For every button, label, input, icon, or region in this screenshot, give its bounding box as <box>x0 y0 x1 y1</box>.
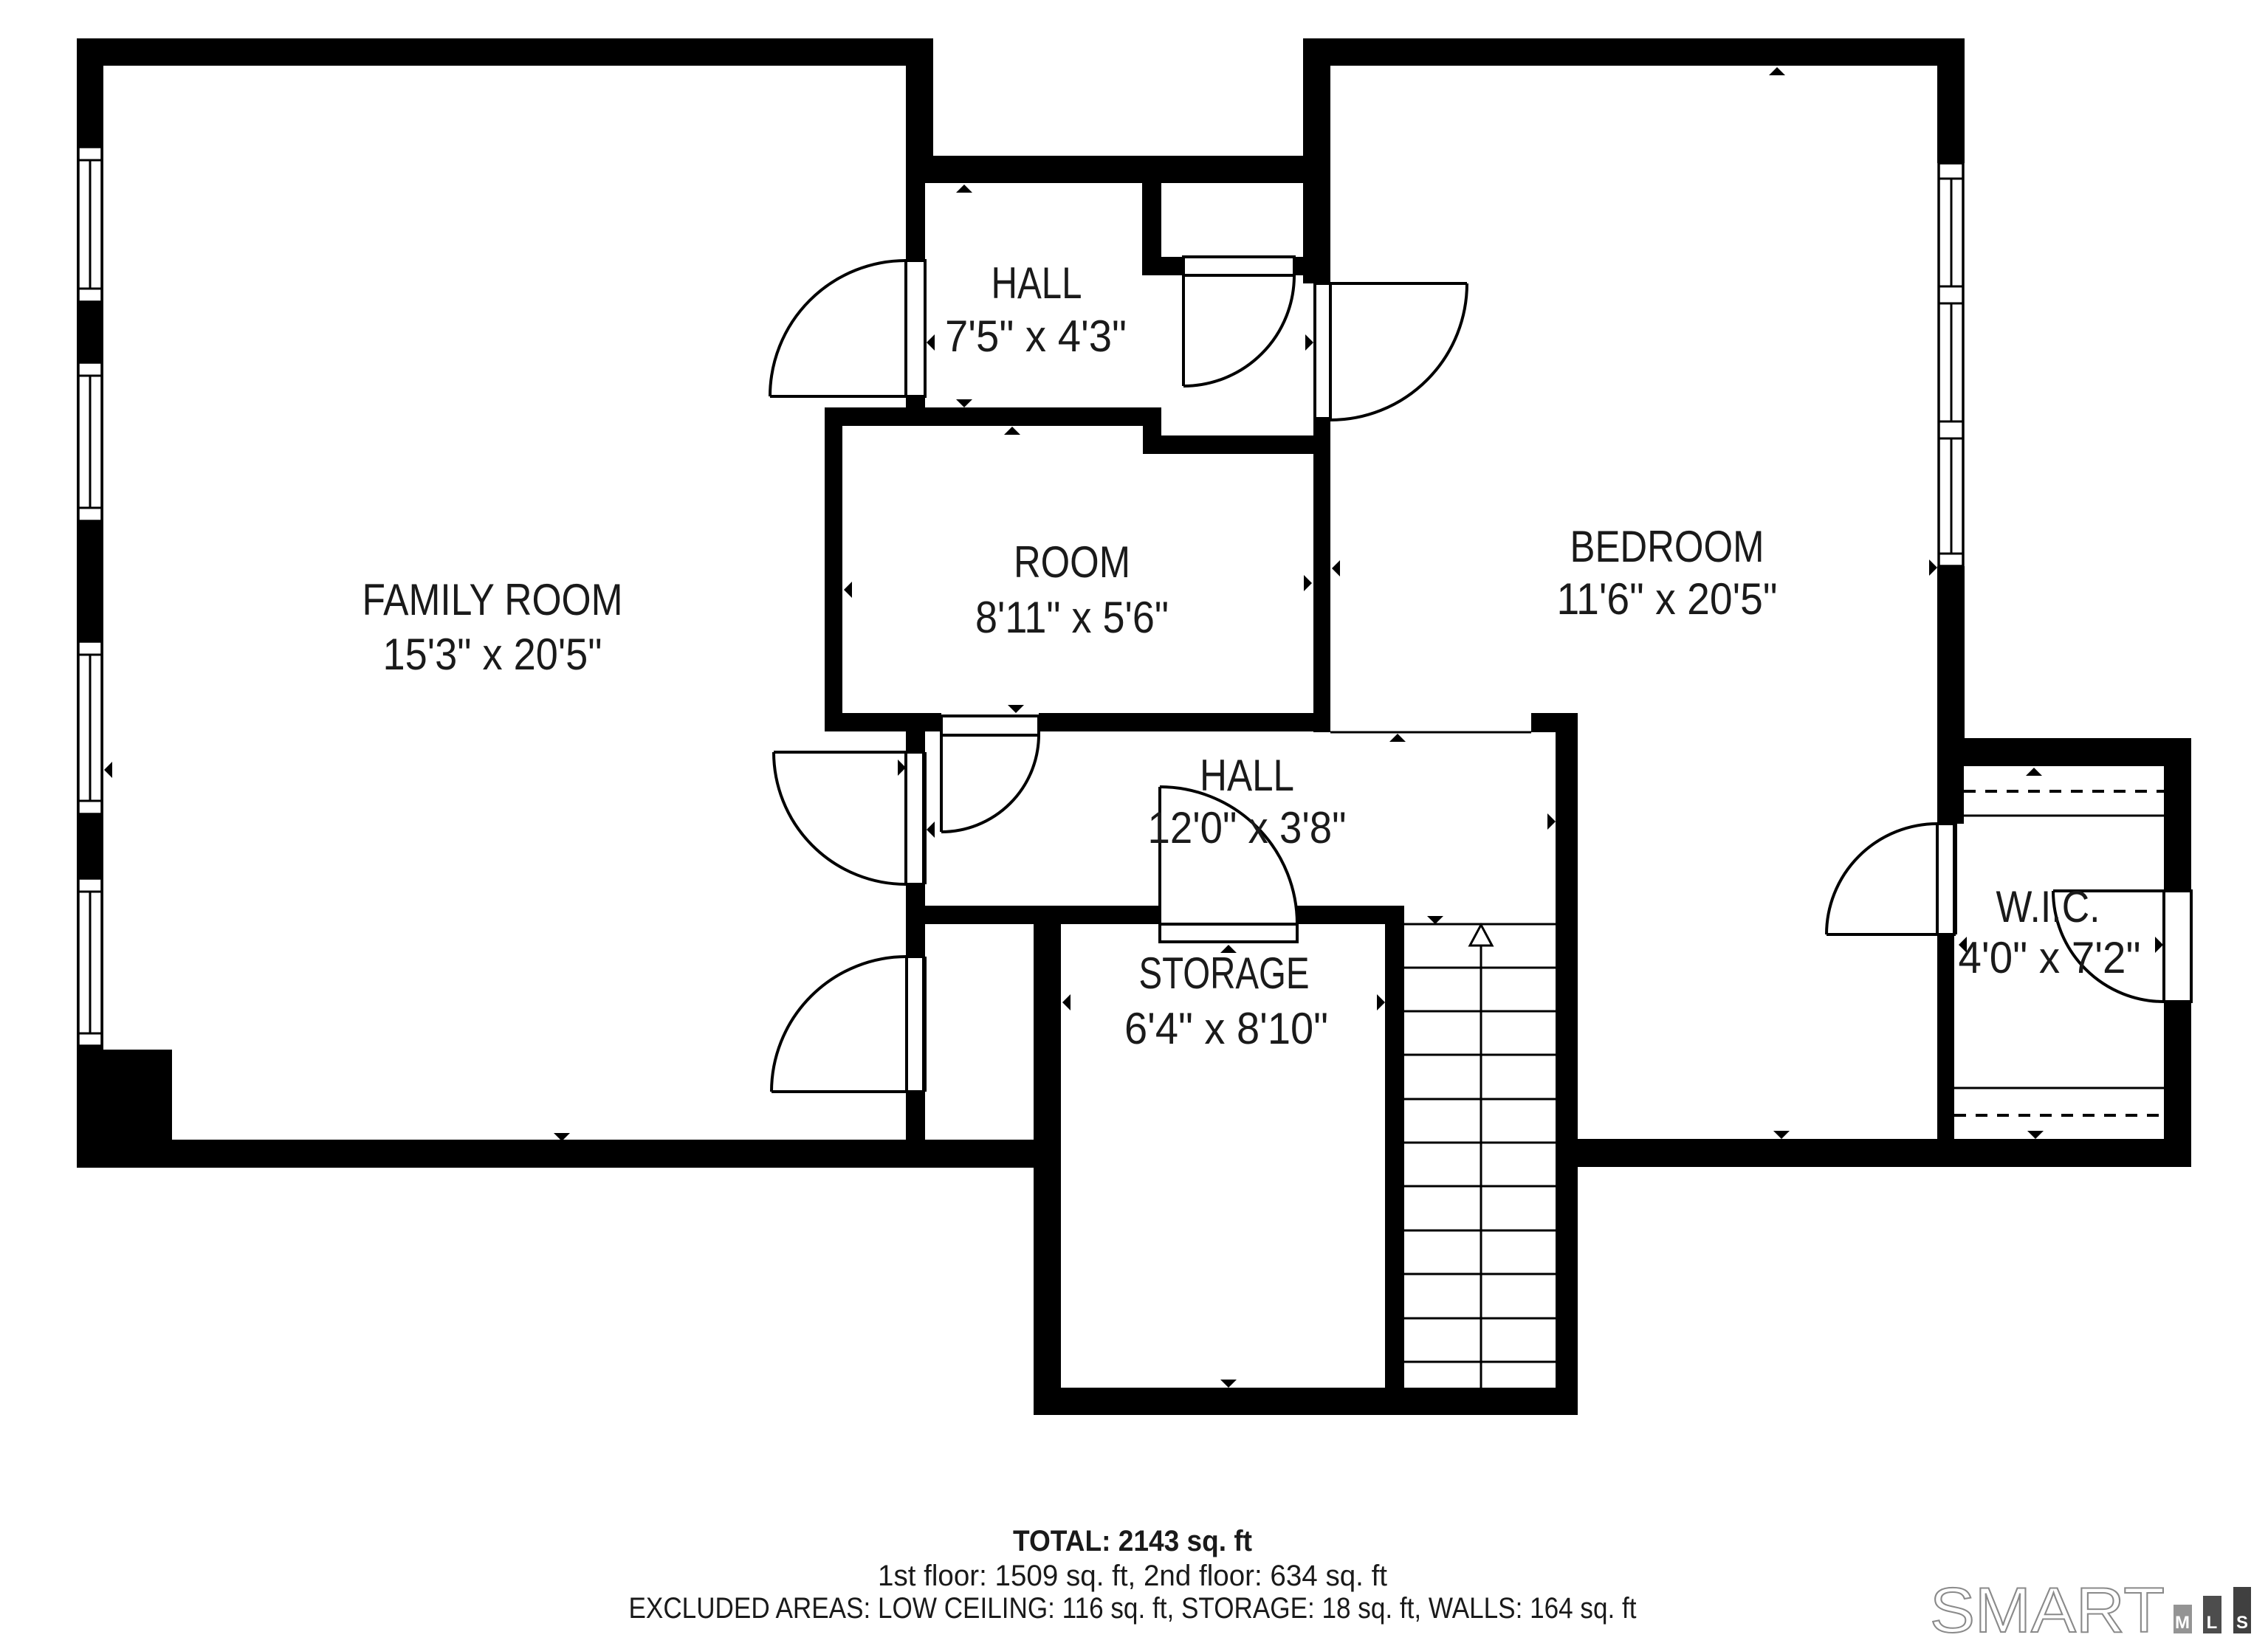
svg-text:TOTAL: 2143 sq. ft: TOTAL: 2143 sq. ft <box>1013 1525 1252 1557</box>
svg-text:1st floor: 1509 sq. ft, 2nd fl: 1st floor: 1509 sq. ft, 2nd floor: 634 s… <box>878 1560 1387 1592</box>
svg-text:STORAGE: STORAGE <box>1139 948 1310 998</box>
svg-text:S: S <box>2236 1613 2248 1633</box>
svg-text:L: L <box>2207 1613 2218 1633</box>
svg-text:BEDROOM: BEDROOM <box>1570 522 1764 571</box>
svg-text:6'4" x 8'10": 6'4" x 8'10" <box>1124 1004 1328 1053</box>
svg-text:HALL: HALL <box>1200 751 1294 800</box>
svg-text:4'0" x 7'2": 4'0" x 7'2" <box>1959 933 2141 982</box>
svg-text:11'6" x 20'5": 11'6" x 20'5" <box>1557 574 1778 624</box>
svg-text:7'5" x 4'3": 7'5" x 4'3" <box>945 311 1127 361</box>
svg-text:12'0" x 3'8": 12'0" x 3'8" <box>1148 803 1347 853</box>
svg-text:EXCLUDED AREAS: LOW CEILING: 1: EXCLUDED AREAS: LOW CEILING: 116 sq. ft,… <box>629 1592 1637 1625</box>
svg-text:ROOM: ROOM <box>1014 537 1130 587</box>
svg-text:SMART: SMART <box>1930 1575 2165 1646</box>
svg-text:HALL: HALL <box>992 258 1082 308</box>
svg-text:FAMILY ROOM: FAMILY ROOM <box>362 575 623 624</box>
svg-text:8'11" x 5'6": 8'11" x 5'6" <box>975 593 1169 642</box>
svg-text:M: M <box>2175 1613 2190 1633</box>
svg-text:15'3" x 20'5": 15'3" x 20'5" <box>383 630 602 679</box>
svg-text:W.I.C.: W.I.C. <box>1996 882 2100 932</box>
